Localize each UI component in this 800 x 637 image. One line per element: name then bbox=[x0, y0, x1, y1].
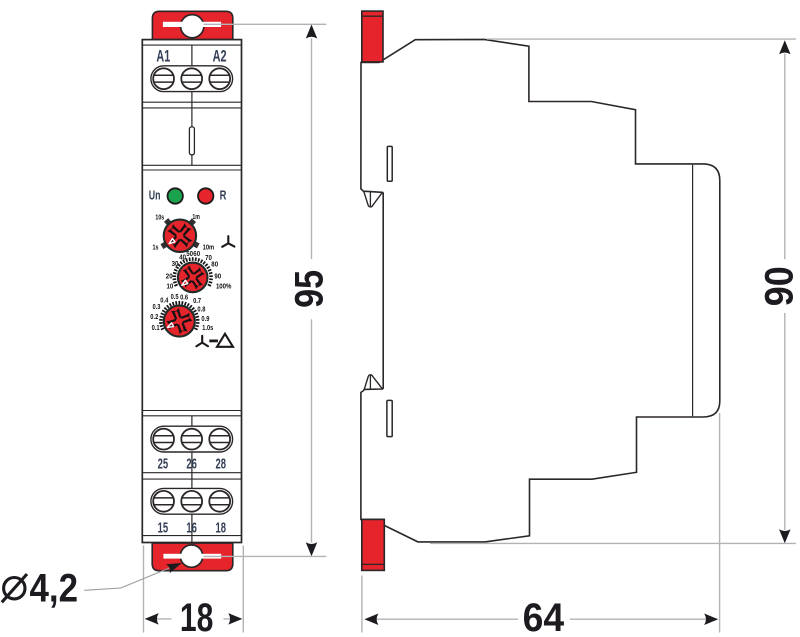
svg-text:28: 28 bbox=[216, 455, 227, 472]
svg-text:10: 10 bbox=[167, 282, 174, 291]
svg-text:1.0s: 1.0s bbox=[202, 323, 213, 332]
svg-text:Un: Un bbox=[149, 188, 161, 203]
svg-text:18: 18 bbox=[216, 519, 227, 536]
svg-text:0.1: 0.1 bbox=[152, 323, 160, 332]
svg-text:26: 26 bbox=[186, 455, 197, 472]
svg-text:15: 15 bbox=[158, 519, 169, 536]
svg-text:40: 40 bbox=[179, 252, 186, 261]
svg-text:0.4: 0.4 bbox=[160, 295, 168, 304]
svg-text:A2: A2 bbox=[213, 47, 227, 65]
svg-text:10m: 10m bbox=[203, 242, 215, 251]
svg-text:0.5: 0.5 bbox=[171, 292, 179, 301]
svg-text:0.6: 0.6 bbox=[180, 293, 188, 302]
svg-text:0.9: 0.9 bbox=[201, 314, 209, 323]
svg-text:64: 64 bbox=[523, 596, 565, 637]
svg-text:A1: A1 bbox=[156, 47, 170, 65]
svg-text:0.7: 0.7 bbox=[193, 296, 201, 305]
svg-text:20: 20 bbox=[166, 272, 173, 281]
svg-text:25: 25 bbox=[158, 455, 169, 472]
svg-text:1m: 1m bbox=[192, 212, 200, 221]
svg-text:10s: 10s bbox=[155, 213, 164, 222]
svg-text:80: 80 bbox=[211, 260, 218, 269]
svg-text:90: 90 bbox=[214, 272, 221, 281]
svg-text:1s: 1s bbox=[153, 242, 159, 251]
svg-text:0.3: 0.3 bbox=[153, 302, 161, 311]
svg-text:60: 60 bbox=[193, 249, 200, 258]
svg-text:0.2: 0.2 bbox=[150, 312, 158, 321]
svg-text:95: 95 bbox=[288, 270, 332, 308]
svg-text:4,2: 4,2 bbox=[30, 567, 79, 611]
svg-text:R: R bbox=[220, 188, 227, 203]
svg-text:30: 30 bbox=[172, 259, 179, 268]
svg-text:0.8: 0.8 bbox=[197, 305, 205, 314]
svg-text:16: 16 bbox=[186, 519, 197, 536]
svg-text:90: 90 bbox=[758, 266, 800, 306]
svg-text:18: 18 bbox=[180, 596, 214, 637]
svg-text:50: 50 bbox=[186, 249, 193, 258]
svg-text:100%: 100% bbox=[216, 282, 232, 291]
